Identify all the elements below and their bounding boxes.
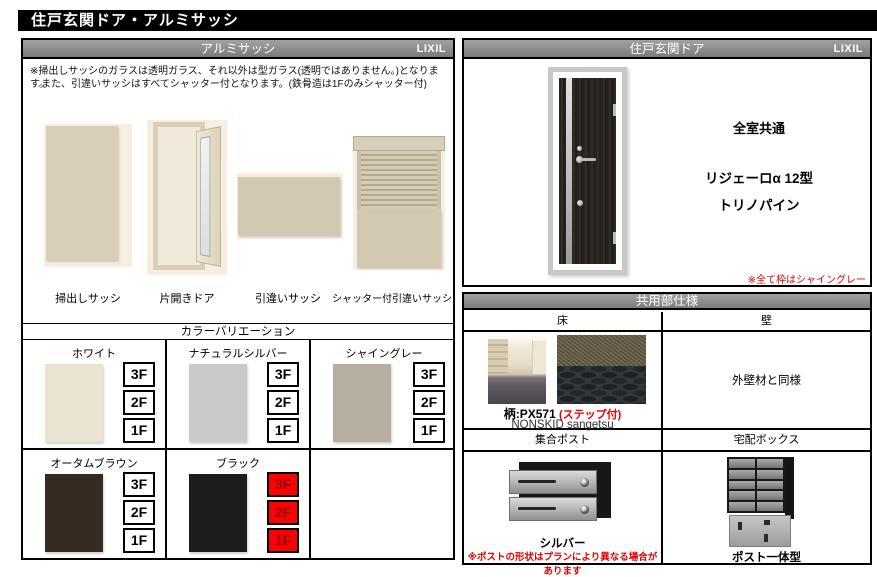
stone-wall <box>488 339 508 375</box>
swing-door-image <box>147 120 227 275</box>
floor-1f: 1F <box>413 418 445 443</box>
window-graphic <box>357 209 441 267</box>
entrance-door-image <box>548 67 627 275</box>
door-glass <box>200 136 210 257</box>
color-label: ホワイト <box>23 345 165 361</box>
corridor-photo <box>488 335 546 404</box>
color-cell-white: ホワイト 3F 2F 1F <box>23 340 165 448</box>
wall-spec-text: 外壁材と同様 <box>663 372 870 388</box>
wall-column-header: 壁 <box>663 312 870 331</box>
mailbox-note: ※ポストの形状はプランにより異なる場合があります <box>464 549 661 577</box>
door-hinge <box>613 104 616 116</box>
floor-maker: NONSKID sangetsu <box>464 419 661 431</box>
color-label: シャイングレー <box>311 345 457 361</box>
shutter-graphic <box>357 151 441 209</box>
mailbox-unit <box>509 470 597 494</box>
door-finish: トリノパイン <box>664 194 854 214</box>
door-lock-lower <box>577 200 583 206</box>
sash-note-2: また、引違いサッシはすべてシャッター付となります。(鉄骨造は1Fのみシャッター付… <box>41 78 451 91</box>
floor-1f: 1F <box>267 418 299 443</box>
mailbox-column-header: 集合ポスト <box>464 431 661 450</box>
window-swatch <box>45 474 103 552</box>
nonskid-texture-photo <box>557 335 646 404</box>
mail-slot <box>518 507 556 510</box>
stud-texture <box>557 366 646 404</box>
locker-handle <box>764 534 768 542</box>
page-title: 住戸玄関ドア・アルミサッシ <box>18 10 877 31</box>
color-label: オータムブラウン <box>23 455 165 471</box>
delivery-column-header: 宅配ボックス <box>663 431 870 450</box>
color-label: ナチュラルシルバー <box>167 345 309 361</box>
door-frame-note: ※全て枠はシャイングレー <box>748 271 866 286</box>
carpet-texture <box>557 335 646 366</box>
window-graphic <box>46 126 118 260</box>
door-handle <box>581 158 596 161</box>
floor-stack: 3F 2F 1F <box>123 362 155 446</box>
door-hinge <box>613 232 616 244</box>
floor-2f: 2F <box>267 500 299 525</box>
entrance-door-title: 住戸玄関ドア <box>629 42 704 56</box>
floor-1f: 1F <box>123 528 155 553</box>
common-area-header: 共用部仕様 <box>464 294 870 310</box>
floor-2f: 2F <box>123 390 155 415</box>
color-cell-shine-gray: シャイングレー 3F 2F 1F <box>311 340 457 448</box>
floor-2f: 2F <box>413 390 445 415</box>
color-label: ブラック <box>167 455 309 471</box>
door-leaf-graphic <box>196 126 221 267</box>
floor-2f: 2F <box>267 390 299 415</box>
window-swatch <box>45 364 103 442</box>
delivery-box-label: ポスト一体型 <box>663 549 870 565</box>
mail-lock <box>580 505 589 514</box>
delivery-box-lockers <box>729 515 791 547</box>
lixil-logo: LIXIL <box>417 40 446 58</box>
window-graphic <box>238 177 340 235</box>
grid-line <box>464 450 870 452</box>
sash-panel-header: アルミサッシ LIXIL <box>23 40 453 59</box>
product-label-4: シャッター付引違いサッシ <box>331 290 453 305</box>
delivery-box-photo <box>727 457 794 547</box>
window-swatch <box>189 364 247 442</box>
lixil-logo: LIXIL <box>834 40 863 58</box>
sash-panel-title: アルミサッシ <box>201 42 276 56</box>
shutter-window-image <box>353 136 445 270</box>
locker-handle <box>738 522 742 530</box>
mailbox-photo <box>509 462 611 524</box>
door-model: リジェーロα 12型 <box>664 167 854 187</box>
product-label-2: 片開きドア <box>141 290 233 306</box>
floor-3f: 3F <box>123 362 155 387</box>
window-swatch <box>189 474 247 552</box>
color-cell-black: ブラック 3F 2F 1F <box>167 450 309 558</box>
color-cell-empty <box>311 450 457 558</box>
floor-3f: 3F <box>413 362 445 387</box>
mail-slot <box>518 480 556 483</box>
mailbox-unit <box>509 497 597 521</box>
floor-stack: 3F 2F 1F <box>123 472 155 556</box>
color-cell-natural-silver: ナチュラルシルバー 3F 2F 1F <box>167 340 309 448</box>
locker-handle <box>764 520 770 525</box>
delivery-box-mail-doors <box>727 457 785 513</box>
floor-1f: 1F <box>123 418 155 443</box>
floor-3f: 3F <box>267 362 299 387</box>
product-label-3: 引違いサッシ <box>228 290 348 306</box>
floor-stack: 3F 2F 1F <box>413 362 445 446</box>
delivery-box-side <box>785 457 794 519</box>
floor-column-header: 床 <box>464 312 661 331</box>
sash-panel: アルミサッシ LIXIL ※掃出しサッシのガラスは透明ガラス、それ以外は型ガラス… <box>21 38 455 560</box>
shutter-box-graphic <box>353 136 445 151</box>
door-stripe <box>566 78 572 264</box>
page-title-bar: 住戸玄関ドア・アルミサッシ <box>18 10 877 31</box>
common-area-panel: 共用部仕様 床 壁 柄:PX571 (ステップ付) NONSKID sanget… <box>462 292 872 565</box>
mail-lock <box>580 478 589 487</box>
color-variation-header: カラーバリエーション <box>23 323 453 340</box>
floor-2f: 2F <box>123 500 155 525</box>
sliding-sash-image <box>44 124 132 267</box>
right-wall <box>532 341 546 374</box>
entrance-door-header: 住戸玄関ドア LIXIL <box>464 40 870 59</box>
floor-stack: 3F 2F 1F <box>267 362 299 446</box>
floor-1f: 1F <box>267 528 299 553</box>
product-label-1: 掃出しサッシ <box>33 290 143 306</box>
entrance-door-panel: 住戸玄関ドア LIXIL 全室共通 リジェーロα 12型 トリノパイン ※全て枠… <box>462 38 872 287</box>
floor-stack-highlighted: 3F 2F 1F <box>267 472 299 556</box>
door-common-label: 全室共通 <box>664 118 854 137</box>
floor-3f: 3F <box>267 472 299 497</box>
floor-3f: 3F <box>123 472 155 497</box>
window-swatch <box>333 364 391 442</box>
sliding-window-image <box>237 173 343 239</box>
door-lock-upper <box>577 146 582 151</box>
color-cell-autumn-brown: オータムブラウン 3F 2F 1F <box>23 450 165 558</box>
